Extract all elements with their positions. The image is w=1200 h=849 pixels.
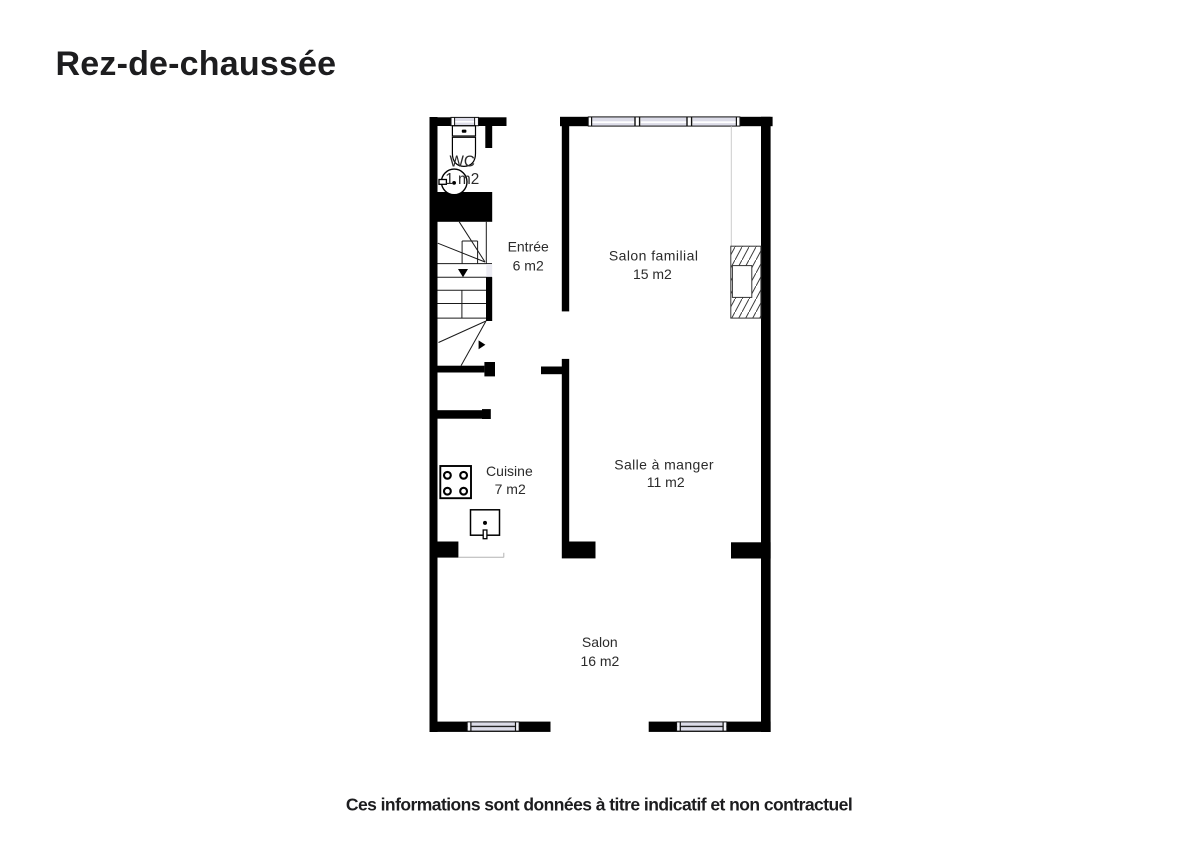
svg-text:Salle à manger: Salle à manger [614, 456, 714, 472]
svg-text:Salon: Salon [582, 634, 618, 650]
svg-text:15 m2: 15 m2 [633, 266, 672, 282]
svg-text:Salon familial: Salon familial [609, 248, 699, 264]
svg-text:6 m2: 6 m2 [513, 258, 544, 274]
svg-text:11 m2: 11 m2 [647, 474, 685, 490]
svg-text:7 m2: 7 m2 [495, 481, 526, 497]
svg-text:Cuisine: Cuisine [486, 463, 533, 479]
svg-text:Entrée: Entrée [508, 238, 549, 254]
svg-text:16 m2: 16 m2 [580, 653, 619, 669]
svg-text:Ces informations sont données: Ces informations sont données à titre in… [346, 795, 852, 815]
svg-text:WC: WC [449, 153, 475, 170]
svg-text:1 m2: 1 m2 [445, 171, 479, 188]
svg-text:Rez-de-chaussée: Rez-de-chaussée [56, 45, 337, 83]
